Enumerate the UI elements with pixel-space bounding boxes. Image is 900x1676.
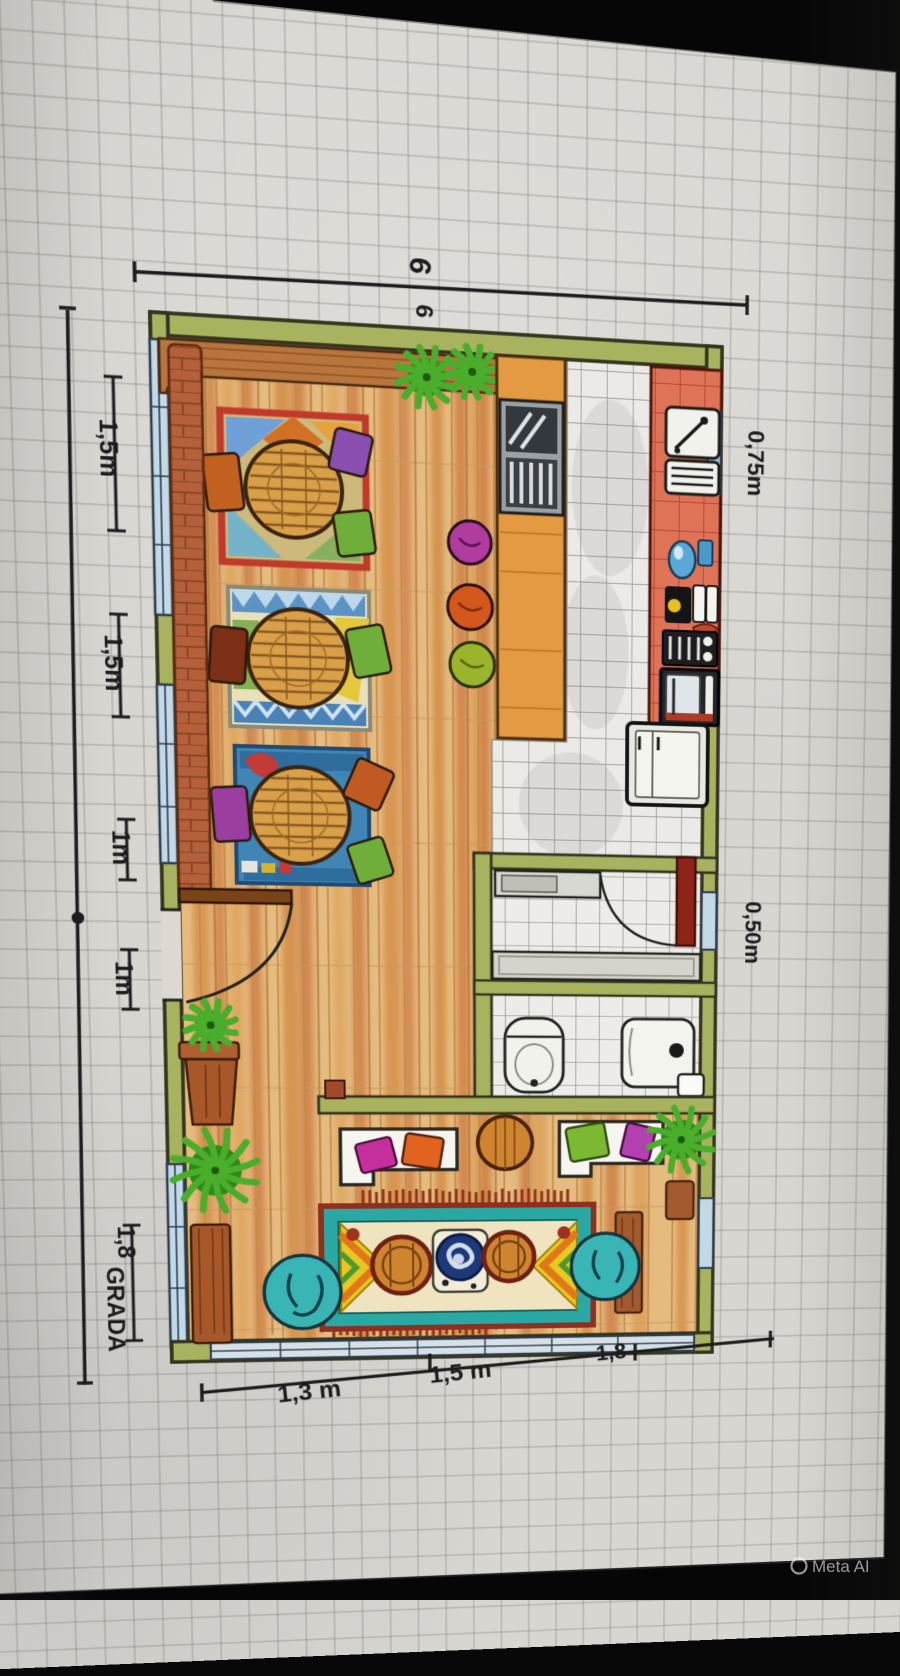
svg-text:Meta AI: Meta AI [812, 1557, 870, 1576]
